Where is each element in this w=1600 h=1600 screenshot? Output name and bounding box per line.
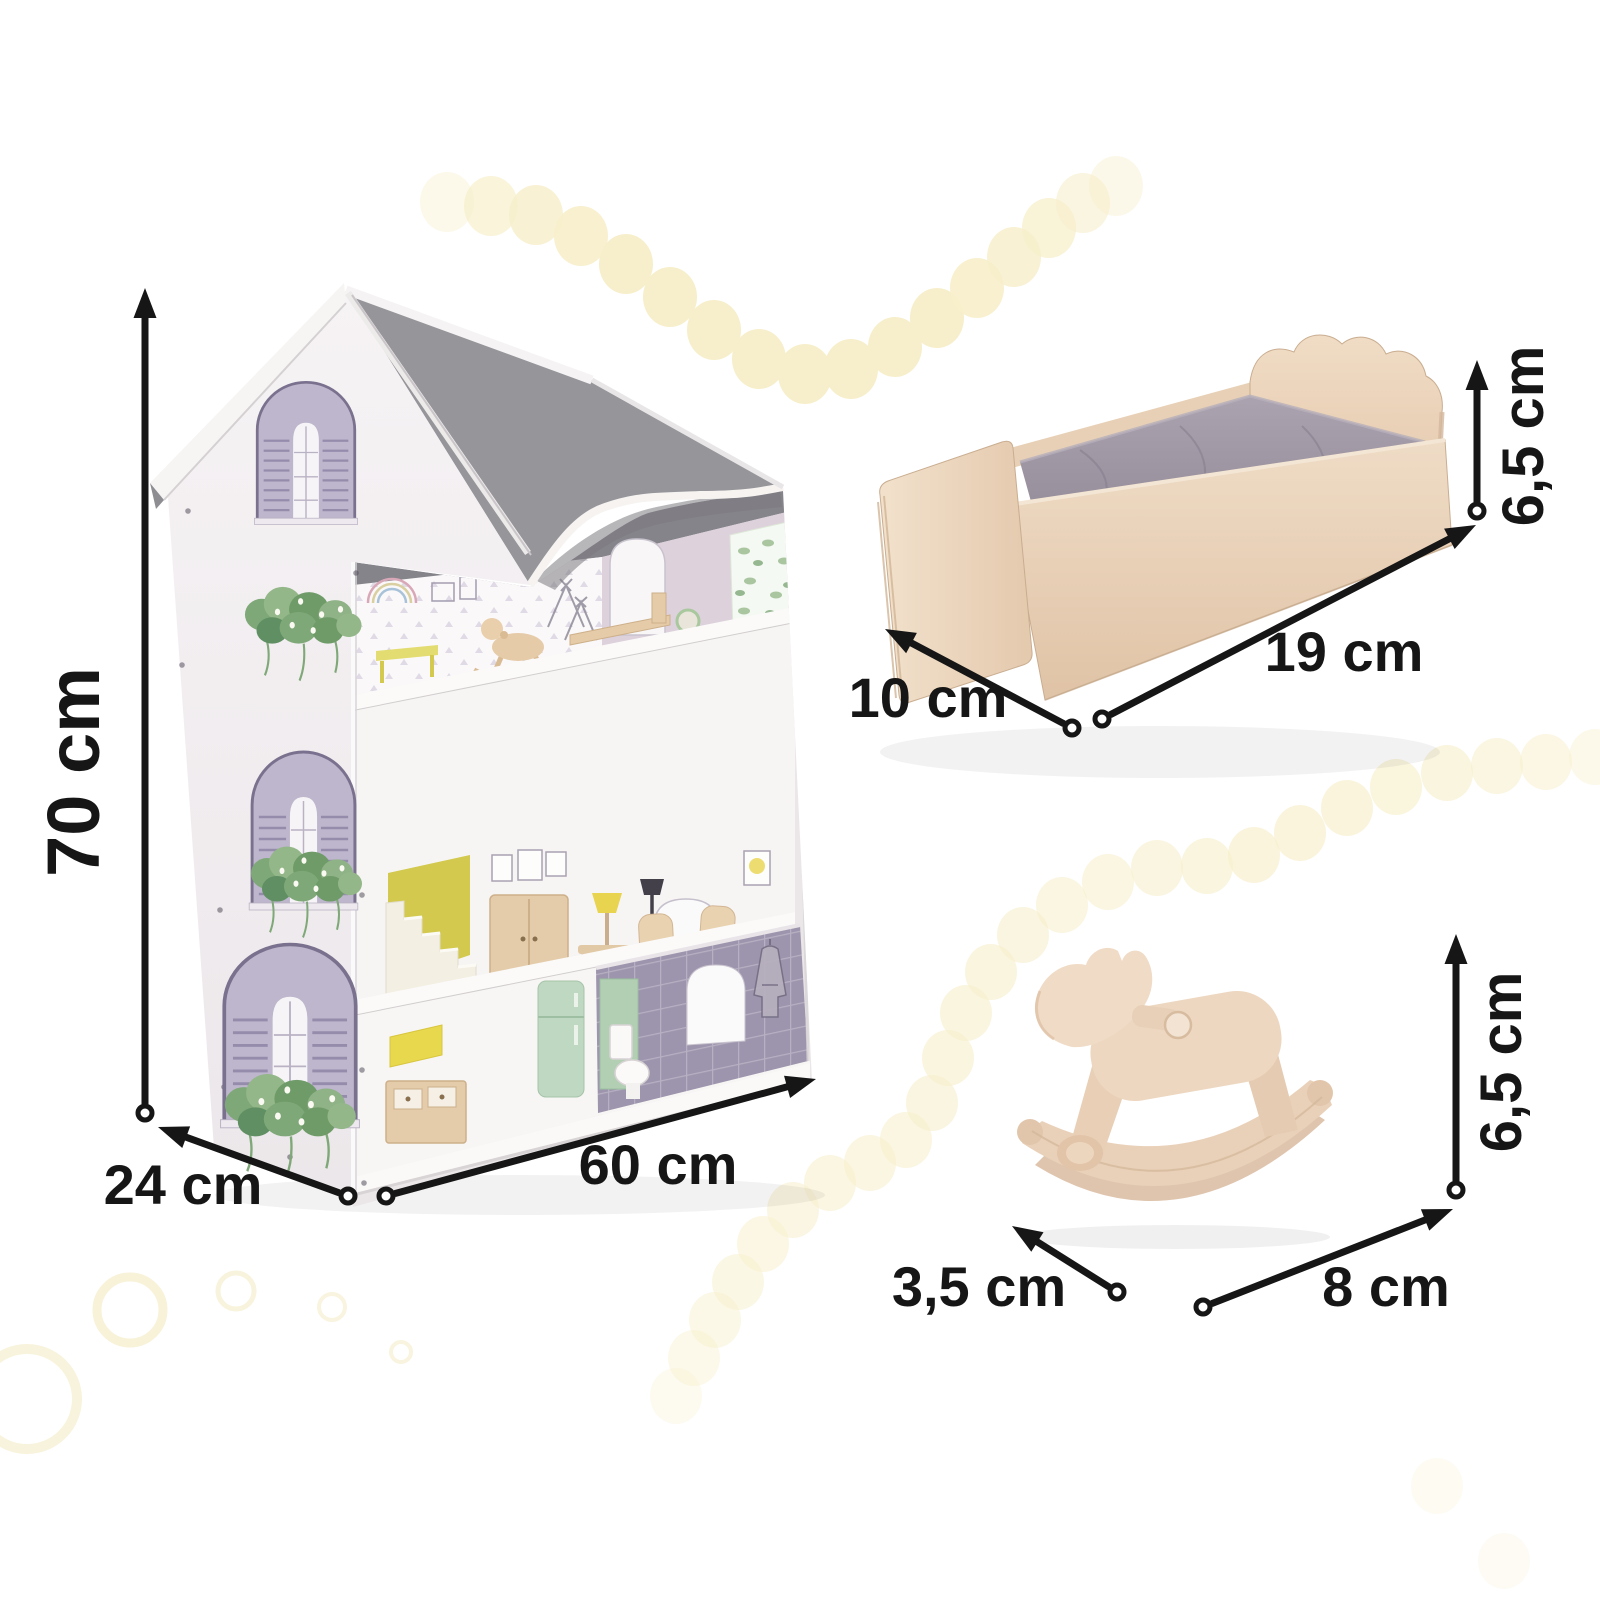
dimension-label-house-width: 60 cm <box>579 1137 738 1193</box>
dimension-label-house-height: 70 cm <box>37 667 111 877</box>
dimension-label-bed-depth: 10 cm <box>849 670 1008 726</box>
house-height-arrow <box>134 288 157 1120</box>
bed-height-arrow <box>1466 360 1489 518</box>
dimension-label-horse-length: 8 cm <box>1322 1259 1450 1315</box>
dimension-label-horse-depth: 3,5 cm <box>892 1259 1066 1315</box>
horse-height-arrow <box>1445 934 1468 1197</box>
dimension-label-house-depth: 24 cm <box>104 1157 263 1213</box>
dimension-label-bed-height: 6,5 cm <box>1495 346 1553 527</box>
dimension-arrows-layer <box>0 0 1600 1600</box>
dimension-label-horse-height: 6,5 cm <box>1473 972 1531 1153</box>
product-dimensions-figure: 70 cm 24 cm 60 cm 6,5 cm 19 cm 10 cm 6,5… <box>0 0 1600 1600</box>
dimension-label-bed-length: 19 cm <box>1265 624 1424 680</box>
